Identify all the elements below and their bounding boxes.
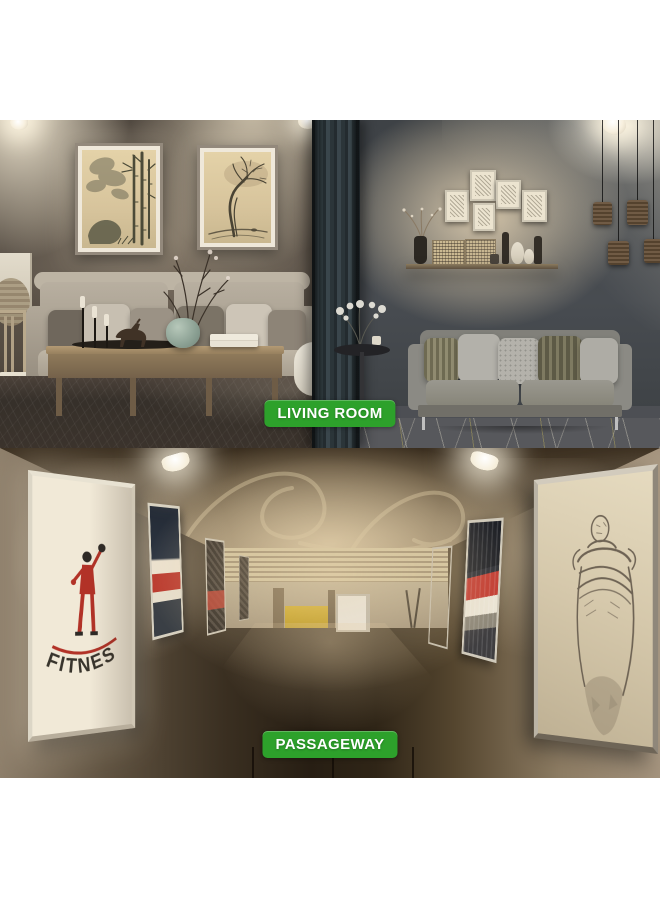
gallery-frame [496, 180, 521, 209]
living-room-section: LIVING ROOM [0, 120, 660, 448]
pendant-lamp [608, 241, 629, 265]
ceramic-vase [166, 318, 200, 348]
frame-art [527, 195, 542, 217]
product-photo-collage: LIVING ROOM [0, 0, 660, 900]
sofa-shadow [408, 426, 632, 436]
gourd-vase [524, 249, 534, 264]
gourd-vase [511, 242, 524, 264]
chair-spindle [11, 316, 14, 376]
frame-art [450, 195, 464, 217]
sofa-leg [422, 417, 425, 430]
gallery-frame [470, 170, 496, 201]
throw-pillow [458, 334, 500, 382]
table-leg [56, 378, 62, 416]
bamboo-ink-painting [82, 150, 156, 248]
horse-figurine [112, 316, 150, 349]
candle [92, 306, 97, 318]
frame-art [501, 185, 516, 204]
wall-art-bamboo [75, 143, 163, 255]
throw-pillow [498, 338, 540, 384]
frame-art [478, 208, 490, 226]
white-flower-plant [332, 298, 394, 348]
throw-pillow [580, 338, 618, 384]
table-leg [206, 378, 212, 416]
gray-sofa [408, 318, 632, 430]
top-white-band [0, 0, 660, 120]
bottom-white-band [0, 778, 660, 900]
lamp-cord [637, 120, 638, 200]
volumetric-light-haze [120, 448, 540, 778]
wall-art-tree [197, 145, 278, 250]
living-room-badge: LIVING ROOM [264, 400, 395, 427]
tree-ink-painting [204, 152, 271, 243]
bodybuilder-sketch-poster [534, 464, 658, 754]
poster-shading [32, 476, 131, 737]
pendant-lamp [627, 200, 648, 225]
living-room-right-scene [332, 120, 660, 448]
seat-cushion [521, 380, 614, 407]
pendant-lamp [644, 239, 660, 263]
throw-pillow [538, 336, 582, 384]
gallery-frame [445, 190, 469, 222]
candle [104, 314, 109, 326]
gallery-frame [473, 203, 495, 231]
candle [80, 296, 85, 308]
lamp-cord [602, 120, 603, 202]
sofa-leg [615, 417, 618, 430]
floating-shelf [406, 264, 558, 269]
candlestick [82, 306, 84, 348]
sofa-base [418, 405, 622, 417]
passageway-section: FITNESS [0, 448, 660, 778]
candlestick [94, 316, 96, 348]
gallery-frame [522, 190, 547, 222]
throw-pillow [424, 338, 460, 382]
living-room-left-scene [0, 120, 332, 448]
frame-art [475, 175, 491, 196]
chair-spindle [4, 316, 7, 376]
lamp-cord [653, 120, 654, 239]
passageway-badge: PASSAGEWAY [262, 731, 397, 758]
book-stack [210, 334, 258, 347]
bottle [534, 236, 542, 264]
coffee-table-front [48, 354, 282, 378]
candlestick [106, 324, 108, 348]
small-cup [490, 254, 499, 264]
table-leg [130, 378, 136, 416]
bottle [502, 232, 509, 264]
seat-cushion [426, 380, 519, 407]
lamp-cord [618, 120, 619, 241]
pendant-lamp [593, 202, 612, 225]
ceiling-spotlight-icon [10, 120, 28, 130]
carved-panel [432, 240, 465, 266]
dark-vase [414, 236, 427, 264]
